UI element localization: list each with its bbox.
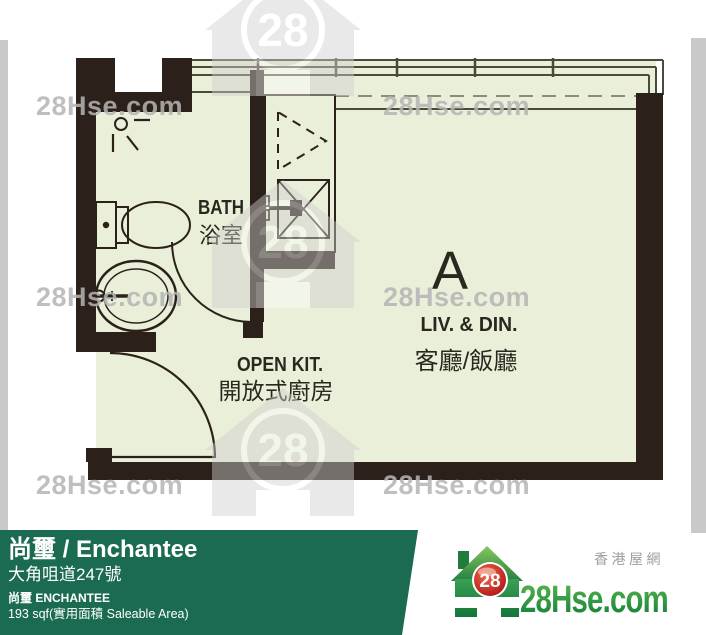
brand-badge: 28	[472, 562, 508, 598]
property-subtitle: 尚璽 ENCHANTEE	[8, 590, 110, 605]
watermark-text: 28Hse.com	[383, 282, 530, 312]
living-label-en: LIV. & DIN.	[421, 314, 518, 336]
property-area: 193 sqf(實用面積 Saleable Area)	[8, 606, 189, 621]
living-label-zh: 客廳/飯廳	[415, 348, 518, 375]
floor-area	[96, 75, 641, 462]
watermark-text: 28Hse.com	[36, 91, 183, 121]
watermark-house-tiles: 28 28 28	[205, 0, 361, 516]
floorplan-viewer: BATH 浴室 OPEN KIT. 開放式廚房 A LIV. & DIN. 客廳…	[0, 0, 706, 635]
right-gutter-strip	[691, 38, 706, 533]
watermark-text: 28Hse.com	[383, 91, 530, 121]
watermark-badge: 28	[257, 4, 308, 56]
watermark-text: 28Hse.com	[383, 470, 530, 500]
watermark-badge: 28	[257, 216, 308, 268]
brand-logo-text: 28Hse.com	[520, 579, 668, 621]
property-title: 尚璽 / Enchantee	[8, 536, 197, 563]
property-address: 大角咀道247號	[8, 565, 121, 584]
watermark-text: 28Hse.com	[36, 282, 183, 312]
watermark-house-icon: 28	[205, 0, 361, 96]
left-gutter-strip	[0, 40, 8, 533]
bath-label-en: BATH	[198, 197, 244, 219]
floorplan-image: BATH 浴室 OPEN KIT. 開放式廚房 A LIV. & DIN. 客廳…	[0, 0, 706, 635]
watermark-text: 28Hse.com	[36, 470, 183, 500]
watermark-badge: 28	[257, 424, 308, 476]
duct-notch	[115, 56, 162, 93]
brand-site-zh: 香港屋網	[594, 551, 664, 567]
brand-badge-number: 28	[479, 571, 500, 592]
kitchen-label-en: OPEN KIT.	[237, 354, 323, 376]
